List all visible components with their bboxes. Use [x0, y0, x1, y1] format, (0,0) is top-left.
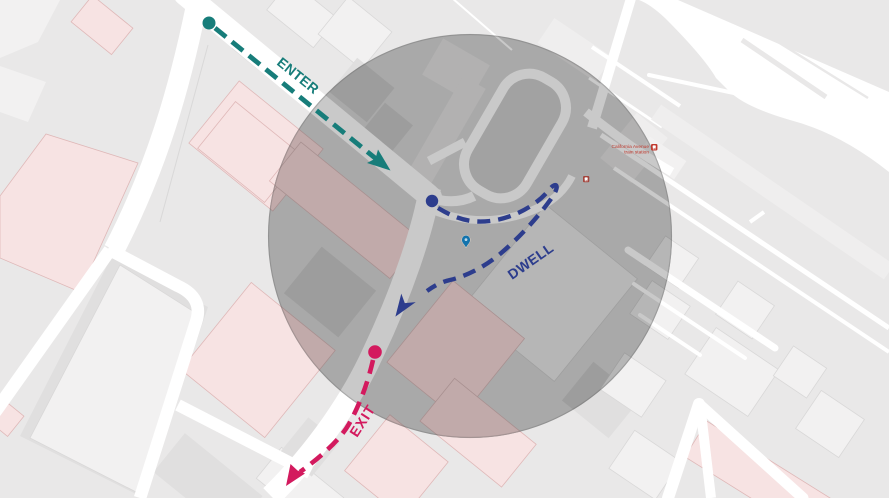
svg-text:train station: train station [624, 150, 649, 156]
svg-text:California Avenue: California Avenue [611, 144, 649, 150]
